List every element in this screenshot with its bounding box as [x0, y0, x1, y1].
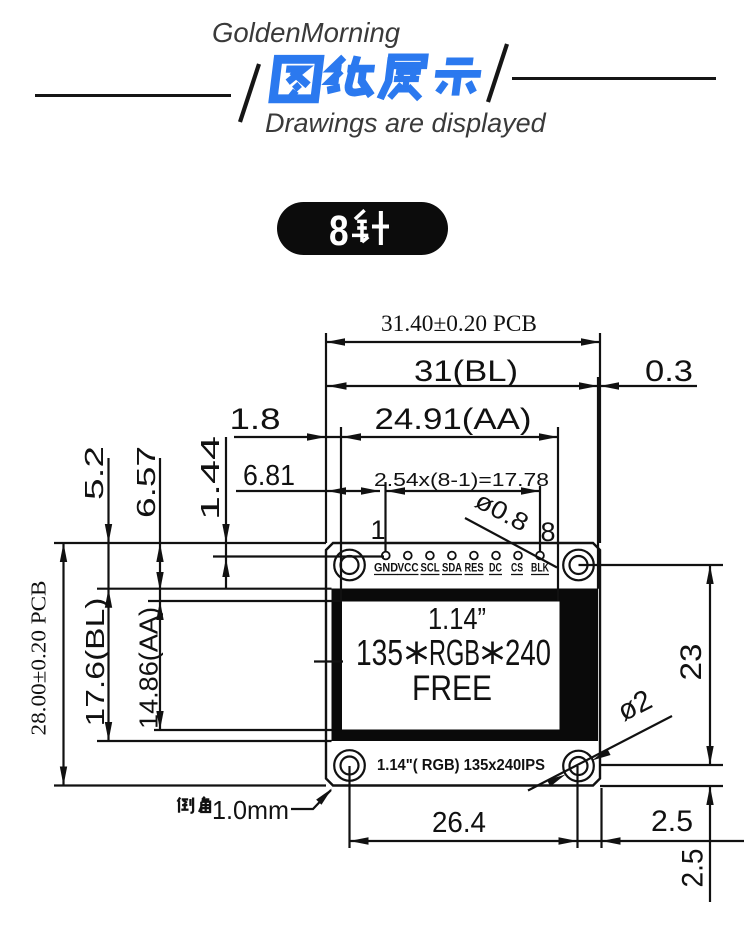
svg-text:1: 1 [370, 515, 385, 545]
svg-text:SCL: SCL [421, 561, 440, 575]
svg-text:1.8: 1.8 [230, 403, 281, 436]
svg-text:SDA: SDA [442, 561, 462, 575]
svg-text:23: 23 [675, 644, 708, 681]
svg-text:26.4: 26.4 [432, 807, 486, 839]
svg-text:1.14”: 1.14” [428, 601, 486, 636]
svg-text:RGB: RGB [429, 632, 480, 673]
svg-text:6.57: 6.57 [131, 446, 161, 518]
svg-text:GND: GND [374, 561, 398, 575]
svg-text:FREE: FREE [412, 669, 492, 708]
svg-text:24.91(AA): 24.91(AA) [375, 403, 532, 436]
svg-text:2.54x(8-1)=17.78: 2.54x(8-1)=17.78 [374, 470, 549, 490]
svg-text:14.86(AA): 14.86(AA) [134, 607, 164, 729]
svg-text:135: 135 [356, 632, 403, 673]
svg-text:6.81: 6.81 [243, 460, 295, 492]
svg-text:31.40±0.20 PCB: 31.40±0.20 PCB [381, 311, 537, 336]
svg-text:240: 240 [505, 632, 551, 673]
svg-text:17.6(BL): 17.6(BL) [80, 598, 110, 727]
svg-text:0.3: 0.3 [645, 355, 693, 388]
svg-text:RES: RES [465, 561, 484, 575]
svg-text:2.5: 2.5 [651, 805, 693, 838]
svg-text:BLK: BLK [531, 561, 549, 575]
svg-text:DC: DC [489, 561, 502, 575]
svg-text:VCC: VCC [398, 561, 419, 575]
svg-text:ø2: ø2 [613, 684, 658, 728]
svg-text:2.5: 2.5 [677, 849, 710, 888]
svg-text:CS: CS [511, 561, 523, 575]
svg-text:1.0mm: 1.0mm [212, 795, 289, 825]
svg-text:1.14"( RGB) 135x240IPS: 1.14"( RGB) 135x240IPS [377, 757, 545, 774]
svg-text:31(BL): 31(BL) [414, 355, 518, 388]
svg-text:8: 8 [540, 517, 555, 547]
svg-text:5.2: 5.2 [79, 446, 109, 500]
svg-text:1.44: 1.44 [195, 436, 225, 520]
svg-text:28.00±0.20 PCB: 28.00±0.20 PCB [27, 581, 51, 736]
